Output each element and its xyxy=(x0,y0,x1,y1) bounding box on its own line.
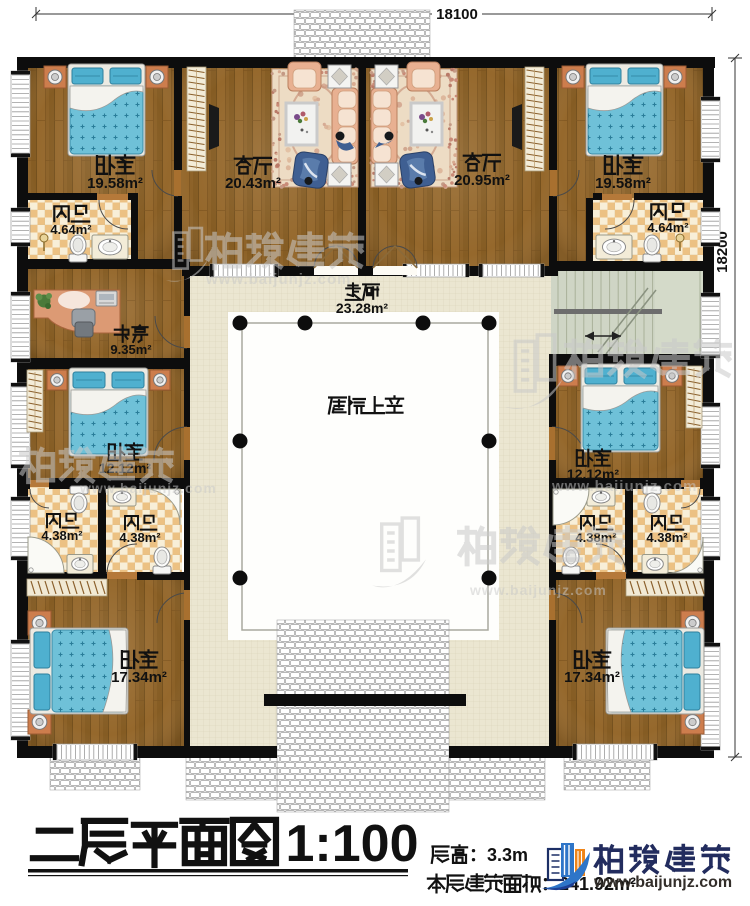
svg-text:www.baijunjz.com: www.baijunjz.com xyxy=(79,480,217,496)
svg-text:www.baijunjz.com: www.baijunjz.com xyxy=(593,874,732,891)
svg-text:17.34m²: 17.34m² xyxy=(111,669,167,686)
svg-text:4.64m²: 4.64m² xyxy=(647,220,689,235)
svg-text:18100: 18100 xyxy=(436,6,478,23)
svg-text:：3.3m: ：3.3m xyxy=(469,845,528,865)
svg-text:4.38m²: 4.38m² xyxy=(41,528,83,543)
svg-text:4.64m²: 4.64m² xyxy=(50,222,92,237)
svg-text:17.34m²: 17.34m² xyxy=(564,669,620,686)
svg-text:23.28m²: 23.28m² xyxy=(336,300,388,316)
svg-text:www.baijunjz.com: www.baijunjz.com xyxy=(205,271,351,288)
svg-text:4.38m²: 4.38m² xyxy=(119,530,161,545)
svg-text:1:100: 1:100 xyxy=(286,815,419,873)
svg-text:19.58m²: 19.58m² xyxy=(87,175,143,192)
svg-text:20.95m²: 20.95m² xyxy=(454,172,510,189)
svg-text:www.baijunjz.com: www.baijunjz.com xyxy=(551,478,697,495)
svg-text:4.38m²: 4.38m² xyxy=(646,530,688,545)
svg-text:www.baijunjz.com: www.baijunjz.com xyxy=(469,582,607,598)
svg-text:19.58m²: 19.58m² xyxy=(595,175,651,192)
svg-text:9.35m²: 9.35m² xyxy=(110,342,152,357)
svg-text:20.43m²: 20.43m² xyxy=(225,175,281,192)
